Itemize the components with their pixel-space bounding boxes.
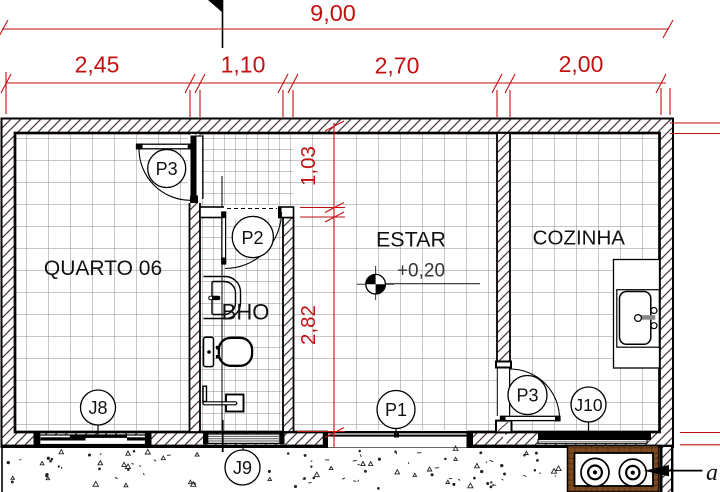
- svg-text:P3: P3: [516, 386, 538, 406]
- svg-text:J9: J9: [233, 458, 252, 478]
- svg-text:P3: P3: [156, 159, 178, 179]
- svg-text:1,10: 1,10: [221, 52, 266, 78]
- svg-text:2,00: 2,00: [559, 51, 604, 77]
- svg-text:P2: P2: [241, 228, 263, 248]
- svg-text:9,00: 9,00: [310, 0, 356, 26]
- svg-text:+0,20: +0,20: [397, 261, 445, 282]
- svg-text:P1: P1: [385, 400, 407, 420]
- svg-text:2,45: 2,45: [75, 52, 120, 78]
- svg-text:BHO: BHO: [222, 300, 270, 325]
- svg-text:COZINHA: COZINHA: [533, 227, 626, 250]
- svg-text:ESTAR: ESTAR: [376, 228, 446, 252]
- svg-text:2,70: 2,70: [375, 53, 420, 79]
- svg-text:J8: J8: [88, 398, 107, 418]
- svg-text:a: a: [706, 460, 718, 486]
- svg-text:2,82: 2,82: [297, 305, 320, 345]
- svg-text:J10: J10: [574, 395, 602, 415]
- svg-text:QUARTO 06: QUARTO 06: [44, 257, 162, 280]
- svg-text:1,03: 1,03: [297, 146, 320, 186]
